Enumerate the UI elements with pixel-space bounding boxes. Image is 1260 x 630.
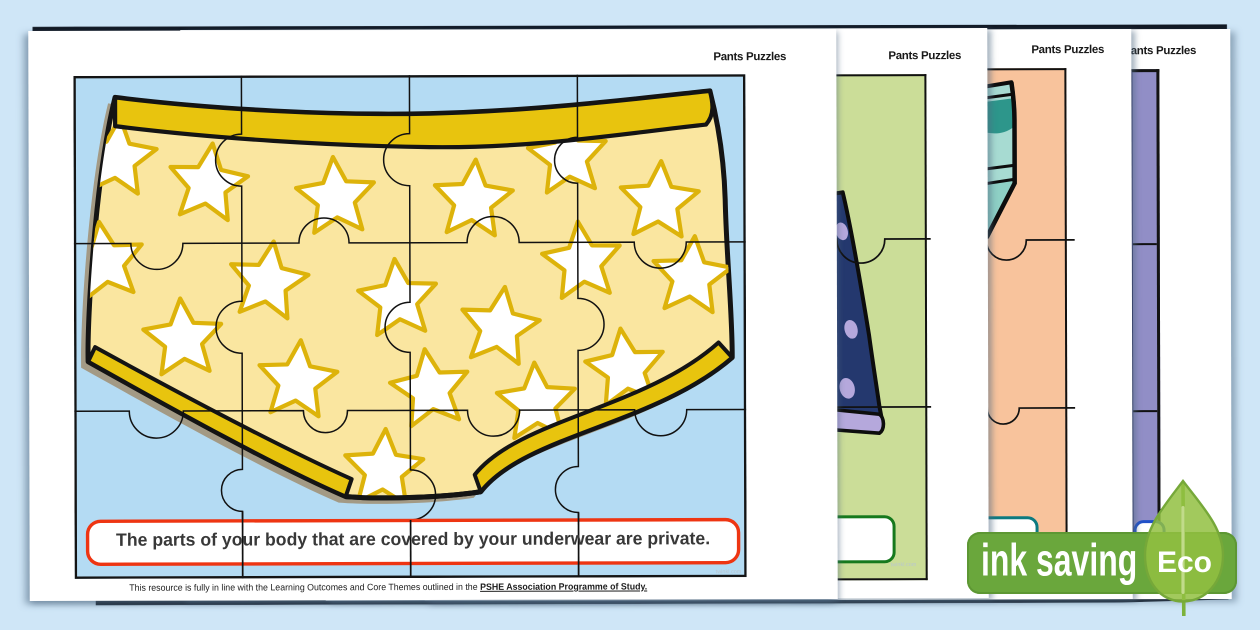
svg-text:Eco: Eco bbox=[1157, 546, 1212, 579]
svg-text:ink saving: ink saving bbox=[981, 536, 1137, 586]
